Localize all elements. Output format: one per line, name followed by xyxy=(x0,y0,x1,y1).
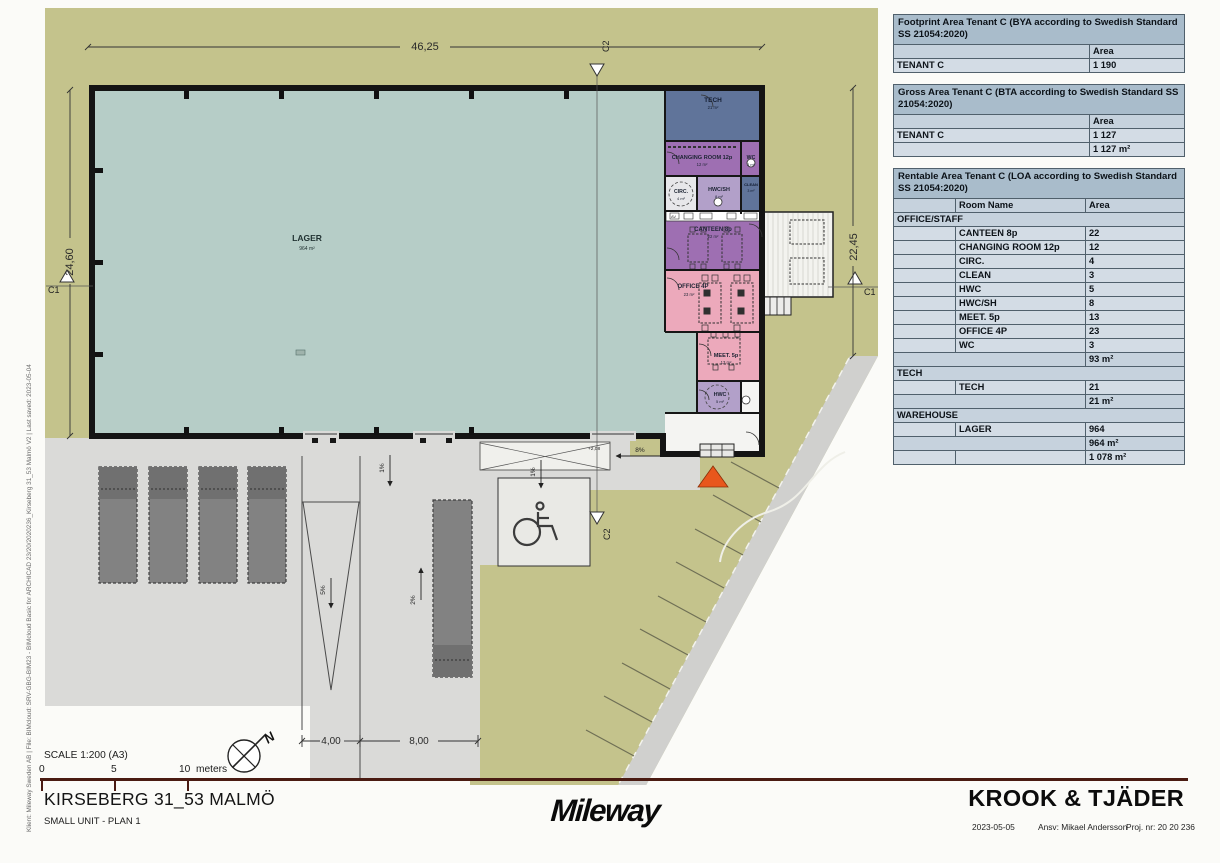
slope-label-dock: 1% xyxy=(379,463,386,473)
dim-bottom-b: 8,00 xyxy=(409,736,429,747)
room-label-changing: CHANGING ROOM 12p xyxy=(672,155,733,161)
scale-bar-line xyxy=(40,778,1188,781)
room-column-header: Room Name xyxy=(956,198,1086,212)
table-title: Rentable Area Tenant C (LOA according to… xyxy=(894,168,1185,198)
table-row: CHANGING ROOM 12p 12 xyxy=(894,240,1185,254)
room-area-meet: 13 m² xyxy=(721,360,732,365)
scale-unit: meters xyxy=(196,764,227,775)
area-column-header: Area xyxy=(1086,198,1185,212)
room-label-hwcsh: HWC/SH xyxy=(708,187,730,193)
room-area-clean: 3 m² xyxy=(747,189,755,193)
room-area-circ: 4 m² xyxy=(677,196,686,201)
grand-total-row: 1 078 m² xyxy=(894,450,1185,464)
mileway-logo: Mileway xyxy=(514,793,697,829)
gross-area-table: Gross Area Tenant C (BTA according to Sw… xyxy=(893,84,1185,157)
room-area-office: 23 m² xyxy=(684,292,695,297)
architect-firm: KROOK & TJÄDER xyxy=(968,785,1184,812)
responsible-person: Ansv: Mikael Andersson xyxy=(1038,822,1127,832)
table-title: Gross Area Tenant C (BTA according to Sw… xyxy=(894,84,1185,114)
floor-drain xyxy=(296,350,305,355)
scale-tick-5: 5 xyxy=(111,764,117,775)
room-label-meet: MEET. 5p xyxy=(714,353,739,359)
accessible-parking-pad xyxy=(498,478,590,566)
room-label-lager: LAGER xyxy=(292,233,322,243)
project-title: KIRSEBERG 31_53 MALMÖ xyxy=(44,789,275,810)
room-label-canteen: CANTEEN 8p xyxy=(694,227,732,233)
table-row: CLEAN 3 xyxy=(894,268,1185,282)
north-label: N xyxy=(261,728,278,746)
table-row: OFFICE 4P 23 xyxy=(894,324,1185,338)
deck-stairs xyxy=(763,297,791,315)
level-marker-a: +2,08 xyxy=(588,446,600,452)
room-area-changing: 12 m² xyxy=(697,162,708,167)
kitchen-counter: AV xyxy=(666,211,761,221)
section-label-c2-top: C2 xyxy=(601,40,611,52)
room-label-clean: CLEAN xyxy=(744,182,758,187)
counter-av-label: AV xyxy=(671,214,676,219)
drawing-sheet: 1% 1% 5% 2% 8% +2,08 +1,78 xyxy=(0,0,1220,863)
section-label-c1-left: C1 xyxy=(48,285,60,295)
table-row: HWC 5 xyxy=(894,282,1185,296)
table-row: WC 3 xyxy=(894,338,1185,352)
room-lager-floor xyxy=(95,90,697,435)
room-label-wc: WC xyxy=(747,155,756,161)
area-tables-panel: Footprint Area Tenant C (BYA according t… xyxy=(893,14,1184,476)
file-info-note: Klient: Mileway Sweden AB | File: BIMclo… xyxy=(26,12,33,832)
table-total-row: 1 127 m² xyxy=(894,142,1185,156)
room-label-circ: CIRC. xyxy=(674,189,689,195)
table-row: LAGER 964 xyxy=(894,422,1185,436)
table-row: CANTEEN 8p 22 xyxy=(894,226,1185,240)
group-row-tech: TECH xyxy=(894,366,1185,380)
area-column-header: Area xyxy=(1090,44,1185,58)
sheet-title: SMALL UNIT - PLAN 1 xyxy=(44,816,141,827)
slope-label-ramp: 5% xyxy=(320,585,327,595)
scale-label: SCALE 1:200 (A3) xyxy=(44,750,128,761)
room-label-tech: TECH xyxy=(704,97,722,104)
room-area-tech: 21 m² xyxy=(708,105,719,110)
vestibule-stair xyxy=(700,444,734,457)
rentable-area-table: Rentable Area Tenant C (LOA according to… xyxy=(893,168,1185,465)
room-area-canteen: 22 m² xyxy=(708,234,719,239)
group-row-office-staff: OFFICE/STAFF xyxy=(894,212,1185,226)
slope-label-pad: 1% xyxy=(530,467,537,477)
dim-bottom-a: 4,00 xyxy=(321,736,341,747)
table-row: TENANT C 1 190 xyxy=(894,58,1185,72)
scale-tick-10: 10 xyxy=(179,764,190,775)
north-compass: N xyxy=(228,728,278,772)
dim-top: 46,25 xyxy=(411,41,439,53)
dim-left: 24,60 xyxy=(64,248,76,276)
room-label-office: OFFICE 4P xyxy=(677,284,708,290)
project-number: Proj. nr: 20 20 236 xyxy=(1126,822,1195,832)
footprint-area-table: Footprint Area Tenant C (BYA according t… xyxy=(893,14,1185,73)
table-row: MEET. 5p 13 xyxy=(894,310,1185,324)
scale-tick-0: 0 xyxy=(39,764,45,775)
subtotal-row: 21 m² xyxy=(894,394,1185,408)
table-row: HWC/SH 8 xyxy=(894,296,1185,310)
table-row: TECH 21 xyxy=(894,380,1185,394)
drawing-date: 2023-05-05 xyxy=(972,822,1015,832)
dim-right: 22,45 xyxy=(848,233,860,261)
room-label-hwc: HWC xyxy=(714,392,727,398)
group-row-warehouse: WAREHOUSE xyxy=(894,408,1185,422)
room-area-wc: 3 m² xyxy=(747,162,756,167)
slope-label-entrance: 8% xyxy=(635,447,645,454)
room-area-lager: 964 m² xyxy=(299,246,315,252)
subtotal-row: 964 m² xyxy=(894,436,1185,450)
slope-label-dock2: 2% xyxy=(410,595,417,605)
area-column-header: Area xyxy=(1090,114,1185,128)
table-row: CIRC. 4 xyxy=(894,254,1185,268)
subtotal-row: 93 m² xyxy=(894,352,1185,366)
section-label-c2-bottom: C2 xyxy=(602,528,612,540)
site-plan: 1% 1% 5% 2% 8% +2,08 +1,78 xyxy=(0,0,890,785)
scale-tick xyxy=(41,778,43,791)
table-row: TENANT C 1 127 xyxy=(894,128,1185,142)
loading-dock-truck xyxy=(433,500,472,677)
room-area-hwcsh: 8 m² xyxy=(715,194,724,199)
section-label-c1-right: C1 xyxy=(864,287,876,297)
room-area-hwc: 5 m² xyxy=(716,399,725,404)
table-title: Footprint Area Tenant C (BYA according t… xyxy=(894,15,1185,45)
